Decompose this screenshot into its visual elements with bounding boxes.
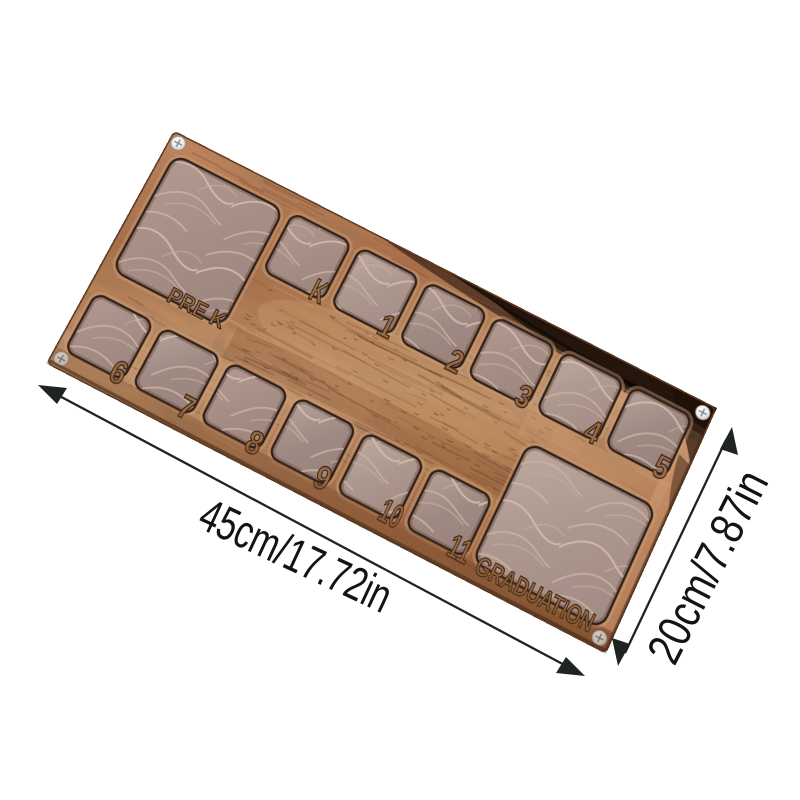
svg-text:20cm/7.87in: 20cm/7.87in [636,461,778,671]
svg-text:45cm/17.72in: 45cm/17.72in [191,487,400,622]
